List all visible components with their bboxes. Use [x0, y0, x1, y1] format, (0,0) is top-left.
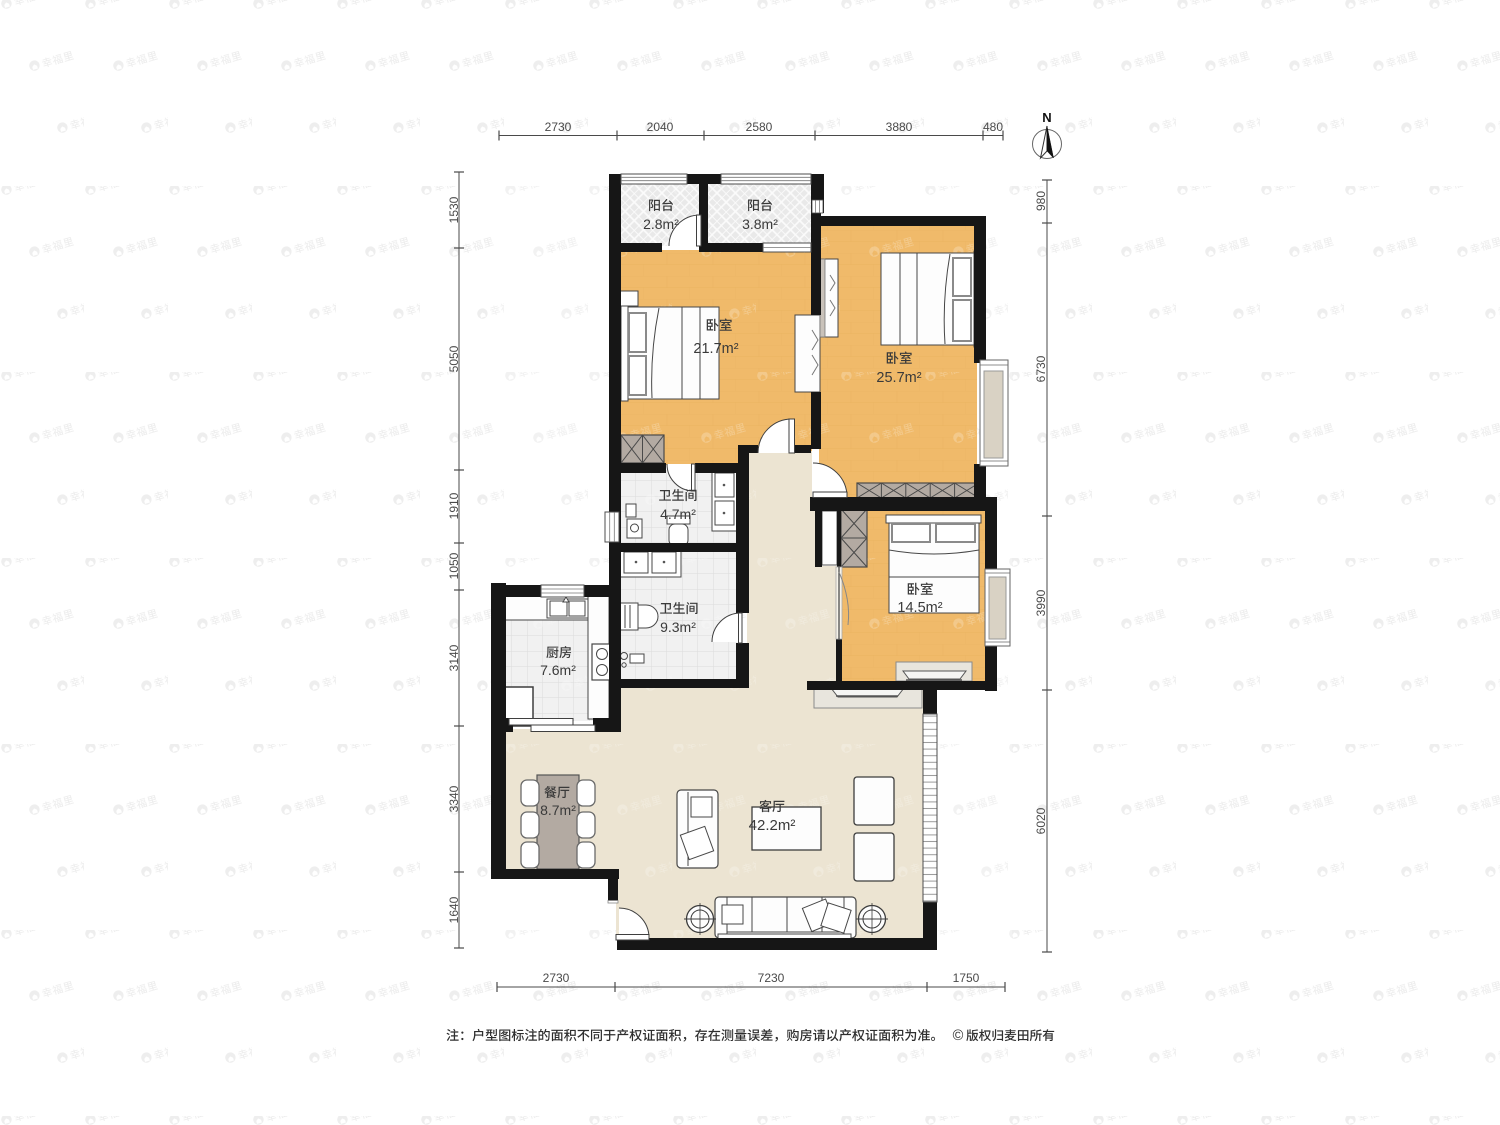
- svg-text:21.7m²: 21.7m²: [693, 341, 738, 357]
- svg-text:4.7m²: 4.7m²: [660, 506, 696, 522]
- svg-text:N: N: [1042, 110, 1051, 125]
- svg-text:7230: 7230: [758, 971, 785, 985]
- svg-text:2730: 2730: [543, 971, 570, 985]
- svg-text:6730: 6730: [1034, 355, 1048, 382]
- svg-text:1750: 1750: [953, 971, 980, 985]
- svg-text:42.2m²: 42.2m²: [749, 817, 796, 834]
- svg-text:5050: 5050: [447, 345, 461, 372]
- svg-text:2730: 2730: [545, 120, 572, 134]
- svg-text:9.3m²: 9.3m²: [660, 619, 696, 635]
- svg-text:6020: 6020: [1034, 807, 1048, 834]
- svg-text:©: ©: [953, 1028, 964, 1044]
- svg-text:2.8m²: 2.8m²: [643, 216, 679, 232]
- svg-text:3140: 3140: [447, 644, 461, 671]
- svg-text:2040: 2040: [647, 120, 674, 134]
- svg-text:14.5m²: 14.5m²: [897, 600, 942, 616]
- svg-text:8.7m²: 8.7m²: [540, 802, 576, 818]
- svg-text:7.6m²: 7.6m²: [540, 662, 576, 678]
- svg-text:1910: 1910: [447, 492, 461, 519]
- svg-text:25.7m²: 25.7m²: [876, 370, 921, 386]
- svg-text:3.8m²: 3.8m²: [742, 216, 778, 232]
- svg-text:1640: 1640: [447, 896, 461, 923]
- svg-text:980: 980: [1034, 191, 1048, 211]
- svg-text:3880: 3880: [886, 120, 913, 134]
- svg-text:2580: 2580: [746, 120, 773, 134]
- svg-text:1530: 1530: [447, 196, 461, 223]
- svg-text:1050: 1050: [447, 552, 461, 579]
- svg-text:3990: 3990: [1034, 589, 1048, 616]
- svg-text:3340: 3340: [447, 785, 461, 812]
- svg-text:480: 480: [983, 120, 1003, 134]
